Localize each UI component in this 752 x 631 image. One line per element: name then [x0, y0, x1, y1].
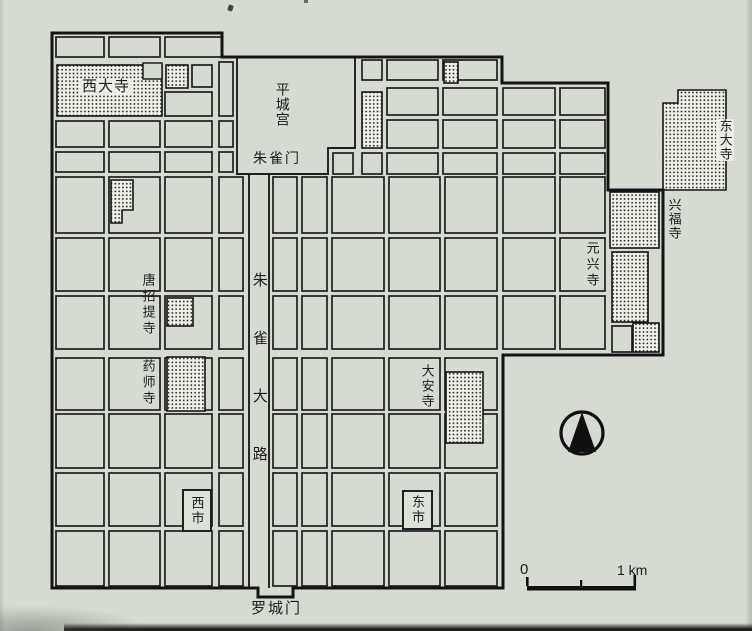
city-block — [56, 414, 104, 468]
city-block — [219, 414, 243, 468]
city-block — [219, 296, 243, 349]
temple-precinct-hatched — [633, 323, 659, 352]
city-block — [56, 296, 104, 349]
city-block — [219, 531, 243, 586]
east-market-box: 东市 — [402, 490, 433, 530]
label-suzaku-gate: 朱雀门 — [253, 151, 301, 166]
city-block — [56, 531, 104, 586]
city-block — [56, 121, 104, 147]
label-west-market: 西市 — [188, 496, 207, 526]
city-block — [219, 473, 243, 526]
label-heijo-palace: 平城宫 — [275, 82, 290, 127]
city-block — [387, 88, 438, 115]
city-block — [165, 152, 212, 172]
city-block — [219, 238, 243, 291]
city-block — [387, 153, 438, 174]
label-suzaku-avenue: 朱雀大路 — [251, 272, 267, 504]
city-block — [219, 358, 243, 410]
city-block — [109, 414, 160, 468]
temple-precinct-hatched — [446, 372, 483, 443]
city-block — [302, 414, 327, 468]
city-block — [387, 120, 438, 148]
city-block — [56, 358, 104, 410]
city-block — [503, 88, 555, 115]
city-block — [109, 152, 160, 172]
city-block — [165, 92, 212, 116]
city-block — [445, 531, 497, 586]
temple-precinct-hatched — [610, 192, 659, 248]
city-block — [560, 88, 605, 115]
label-gangoji: 元兴寺 — [585, 241, 599, 289]
city-block — [362, 153, 382, 174]
city-block — [109, 37, 160, 57]
city-block — [503, 120, 555, 148]
city-block — [302, 177, 327, 233]
city-block — [56, 152, 104, 172]
scale-bar-zero: 0 — [520, 562, 528, 578]
label-rajomon-gate: 罗城门 — [251, 601, 302, 617]
label-kofukuji: 兴福寺 — [667, 198, 681, 240]
city-block — [219, 62, 233, 116]
city-block — [443, 153, 497, 174]
temple-precinct-hatched — [167, 298, 193, 326]
city-block — [56, 37, 104, 57]
city-block — [332, 238, 384, 291]
city-block — [560, 177, 605, 233]
city-block — [56, 473, 104, 526]
city-block — [333, 153, 353, 174]
city-block — [273, 414, 297, 468]
city-block — [503, 153, 555, 174]
city-block — [389, 414, 440, 468]
city-block — [445, 473, 497, 526]
city-block — [192, 65, 212, 87]
city-block — [503, 238, 555, 291]
city-block — [362, 60, 382, 80]
city-block — [445, 177, 497, 233]
temple-precinct-hatched — [612, 252, 648, 322]
city-block — [273, 238, 297, 291]
city-block — [302, 238, 327, 291]
city-block — [387, 60, 438, 80]
city-block — [443, 88, 497, 115]
city-block — [302, 531, 327, 586]
city-block — [332, 358, 384, 410]
city-block — [109, 531, 160, 586]
city-block — [165, 37, 222, 57]
city-block — [503, 177, 555, 233]
city-block — [302, 358, 327, 410]
city-block — [560, 120, 605, 148]
city-block — [445, 238, 497, 291]
city-block — [560, 153, 605, 174]
city-block — [302, 296, 327, 349]
city-block — [332, 531, 384, 586]
city-block — [389, 177, 440, 233]
city-block — [332, 473, 384, 526]
west-market-box: 西市 — [182, 489, 212, 532]
city-block — [560, 296, 605, 349]
label-saidaiji: 西大寺 — [80, 79, 132, 95]
city-block — [165, 238, 212, 291]
city-block — [332, 414, 384, 468]
city-block — [302, 473, 327, 526]
city-block — [273, 177, 297, 233]
city-block — [219, 152, 233, 172]
temple-precinct-hatched — [167, 357, 205, 411]
label-daianji: 大安寺 — [420, 364, 434, 409]
city-block — [219, 177, 243, 233]
city-block — [612, 326, 632, 352]
city-block — [165, 531, 212, 586]
city-block — [389, 296, 440, 349]
north-arrow-icon — [561, 412, 603, 454]
label-todaiji: 东大寺 — [716, 119, 734, 161]
temple-precinct-hatched — [362, 92, 382, 148]
city-block — [273, 358, 297, 410]
city-block — [165, 121, 212, 147]
city-block — [56, 177, 104, 233]
city-block — [273, 473, 297, 526]
city-block — [56, 238, 104, 291]
temple-precinct-hatched — [166, 65, 188, 88]
city-block — [109, 121, 160, 147]
city-block — [273, 296, 297, 349]
city-block — [332, 177, 384, 233]
city-block — [165, 414, 212, 468]
city-block — [219, 121, 233, 147]
label-toshodaiji: 唐招提寺 — [141, 273, 155, 337]
city-block — [389, 238, 440, 291]
city-block — [443, 120, 497, 148]
label-yakushiji: 药师寺 — [141, 359, 155, 407]
city-block — [389, 531, 440, 586]
scanned-map-page: 西大寺 平城宫 朱雀门 东大寺 兴福寺 元兴寺 唐招提寺 药师寺 朱雀大路 大安… — [0, 0, 752, 631]
precinct-notches — [143, 63, 162, 79]
city-block — [503, 296, 555, 349]
temple-precinct-hatched — [111, 180, 133, 223]
label-east-market: 东市 — [408, 495, 427, 525]
scale-bar-unit: 1 km — [617, 563, 647, 578]
city-block — [445, 296, 497, 349]
city-block — [332, 296, 384, 349]
temple-precinct-hatched — [444, 62, 458, 83]
city-block — [165, 177, 212, 233]
city-block — [273, 531, 297, 586]
city-block — [109, 473, 160, 526]
